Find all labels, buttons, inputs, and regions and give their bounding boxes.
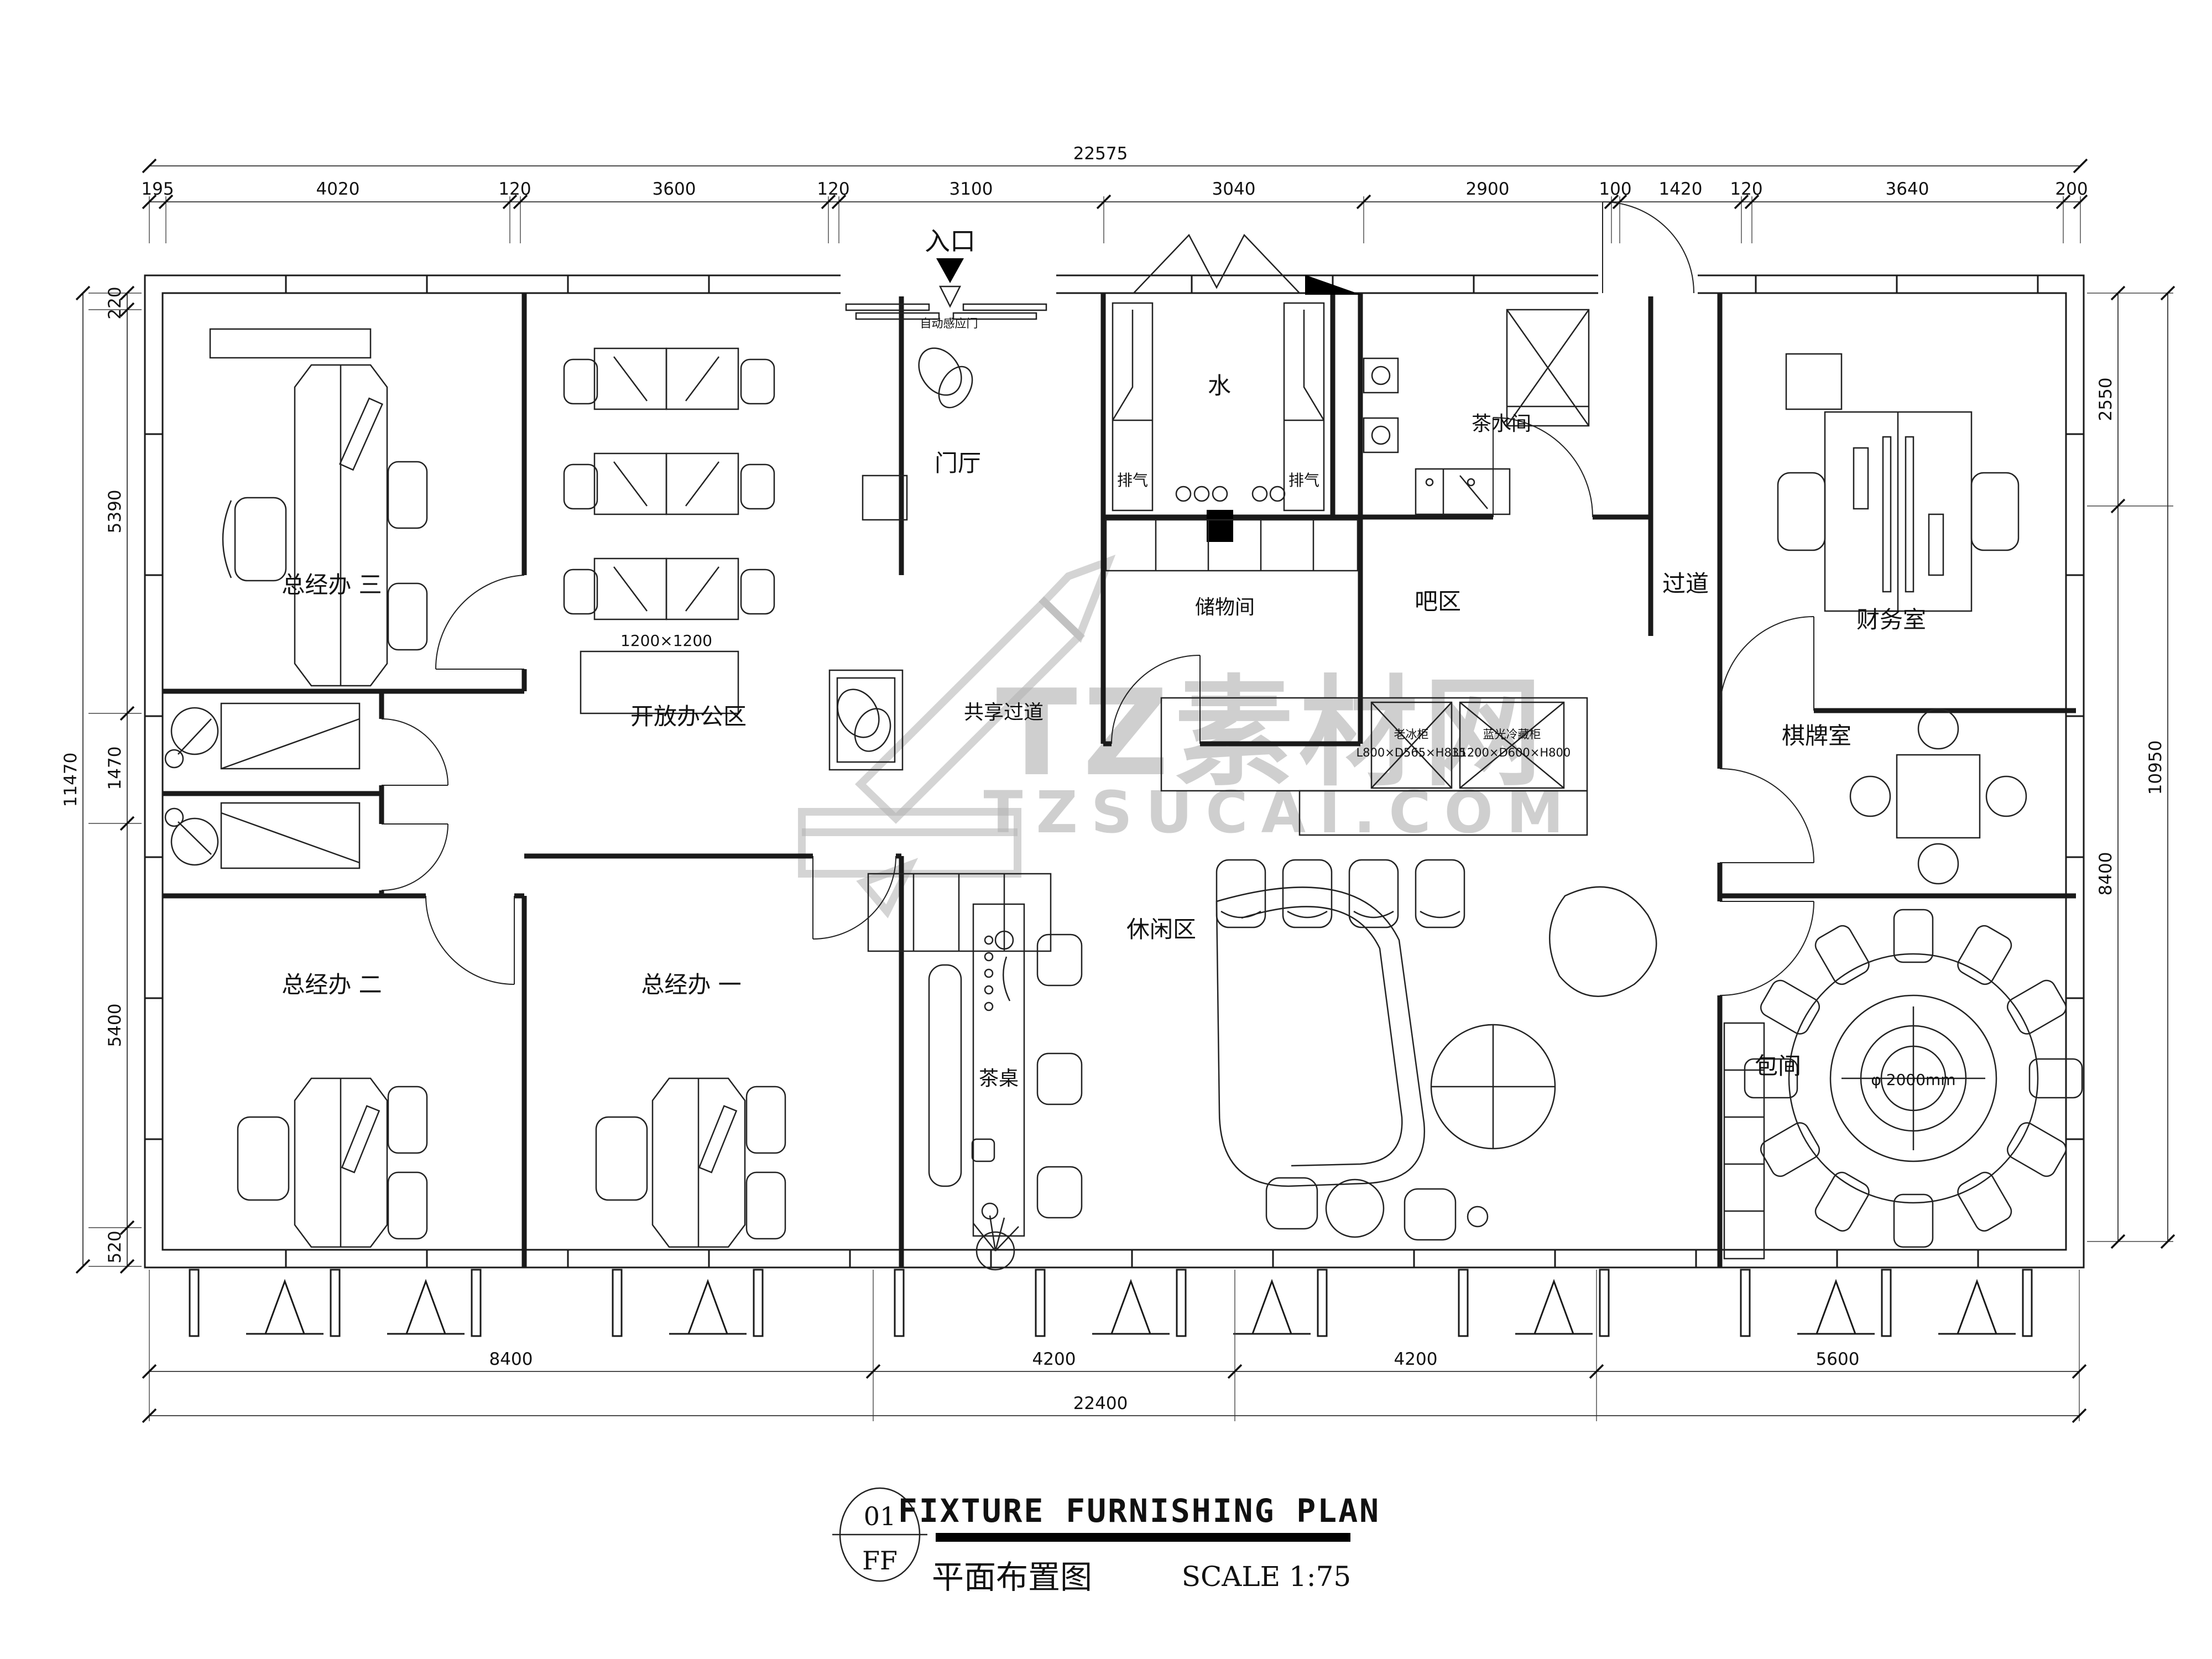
title-underline [936, 1533, 1350, 1542]
title-en: FIXTURE FURNISHING PLAN [898, 1492, 1380, 1530]
label-cooler-size: L1200×D600×H800 [1453, 746, 1571, 759]
shared-corridor-cabinet [868, 874, 1051, 951]
gm3-furniture [210, 329, 427, 686]
auto-door-label: 自动感应门 [920, 317, 978, 330]
label-private-room: 包间 [1755, 1052, 1801, 1079]
label-corridor: 过道 [1662, 570, 1709, 597]
label-bar: 吧区 [1415, 588, 1461, 615]
label-water: 水 [1208, 372, 1231, 399]
door-finance [1720, 617, 1814, 711]
dim-top-7: 2900 [1466, 179, 1510, 199]
sliding-door-leaf [963, 304, 1046, 310]
dim-top-12: 200 [2055, 179, 2088, 199]
dim-left-4: 520 [105, 1230, 125, 1263]
door-gm3 [436, 575, 524, 669]
dim-left-3: 5400 [105, 1004, 125, 1047]
door-bath2 [382, 824, 448, 890]
label-storage: 储物间 [1195, 596, 1255, 619]
dim-top-2: 120 [498, 179, 531, 199]
label-shared-corridor: 共享过道 [964, 701, 1044, 724]
finance-furniture [1778, 354, 2018, 611]
gm2-furniture [238, 1078, 427, 1247]
dim-right-1: 8400 [2096, 852, 2116, 896]
dim-top-5: 3100 [950, 179, 993, 199]
dim-bottom-total: 22400 [1073, 1394, 1128, 1413]
dim-top-3: 3600 [653, 179, 696, 199]
tea-room-fixtures [1364, 310, 1589, 514]
door-bath1 [382, 719, 448, 785]
label-finance: 财务室 [1856, 606, 1926, 633]
open-office-desks [564, 348, 774, 713]
label-tea-room: 茶水间 [1472, 413, 1531, 435]
left-window-mullions [145, 434, 163, 1139]
label-gm2: 总经办 二 [281, 971, 382, 998]
watermark-site-text: TZSUCAI.COM [984, 779, 1577, 846]
dim-bottom-0: 8400 [489, 1349, 533, 1369]
label-exhaust-right: 排气 [1288, 471, 1319, 489]
label-foyer: 门厅 [935, 450, 981, 477]
leisure-furniture [1217, 887, 1656, 1240]
label-cooler-name: 蓝光冷藏柜 [1483, 728, 1541, 741]
label-leisure: 休闲区 [1126, 916, 1196, 943]
title-code: FF [862, 1546, 898, 1575]
dim-top-6: 3040 [1212, 179, 1256, 199]
watermark-logo-head [1044, 561, 1109, 636]
facade-posts-and-markers [190, 1270, 2032, 1336]
top-window-mullions [286, 275, 2038, 293]
label-gm1: 总经办 一 [641, 971, 741, 998]
door-gm2 [426, 896, 514, 984]
dim-right-total: 10950 [2146, 740, 2166, 795]
door-gm1 [813, 856, 896, 939]
gm1-furniture [596, 1078, 785, 1247]
dim-bottom-2: 4200 [1394, 1349, 1438, 1369]
dim-bottom-3: 5600 [1816, 1349, 1860, 1369]
label-round-table-dia: φ 2000mm [1871, 1071, 1955, 1089]
entrance: 自动感应门 入口 [841, 226, 1056, 330]
dim-left-2: 1470 [105, 747, 125, 790]
dim-right-0: 2550 [2096, 378, 2116, 421]
dim-bottom-1: 4200 [1032, 1349, 1076, 1369]
dim-top-8: 100 [1599, 179, 1631, 199]
title-block: 01 FF FIXTURE FURNISHING PLAN 平面布置图 SCAL… [832, 1488, 1380, 1596]
entrance-label: 入口 [925, 226, 975, 256]
title-scale: SCALE 1:75 [1182, 1561, 1352, 1593]
label-tea-table: 茶桌 [979, 1067, 1019, 1090]
dim-top-11: 3640 [1886, 179, 1929, 199]
dim-top-10: 120 [1730, 179, 1762, 199]
label-open-office: 开放办公区 [630, 703, 747, 730]
door-private [1720, 901, 1814, 995]
dim-left-1: 5390 [105, 490, 125, 534]
label-gm3: 总经办 三 [281, 571, 382, 598]
label-fridge-size: L800×D565×H835 [1356, 746, 1466, 759]
label-chess: 棋牌室 [1782, 722, 1851, 749]
chess-furniture [1850, 709, 2026, 884]
dim-top-9: 1420 [1659, 179, 1703, 199]
sliding-door-leaf [846, 304, 929, 310]
title-cn: 平面布置图 [932, 1558, 1092, 1596]
floorplan-page: TZ素材网 TZSUCAI.COM [0, 0, 2212, 1659]
dim-top-1: 4020 [316, 179, 360, 199]
dim-top-4: 120 [817, 179, 849, 199]
right-window-mullions [2066, 434, 2084, 1139]
floorplan-drawing: TZ素材网 TZSUCAI.COM [0, 0, 2212, 1659]
bathroom-furniture [165, 703, 359, 868]
title-number: 01 [864, 1501, 896, 1531]
dim-left-0: 220 [105, 286, 125, 319]
roof-gable-marks [1134, 235, 1361, 295]
door-chess [1720, 769, 1814, 863]
dim-left-total: 11470 [61, 753, 81, 807]
label-fridge-name: 老冰柜 [1394, 728, 1429, 741]
water-room-fixtures [1113, 303, 1324, 542]
label-desk-size: 1200×1200 [620, 632, 712, 650]
label-exhaust-left: 排气 [1117, 471, 1148, 489]
dim-top-0: 195 [141, 179, 174, 199]
foyer-decor [830, 340, 979, 770]
dim-top-total: 22575 [1073, 144, 1128, 164]
